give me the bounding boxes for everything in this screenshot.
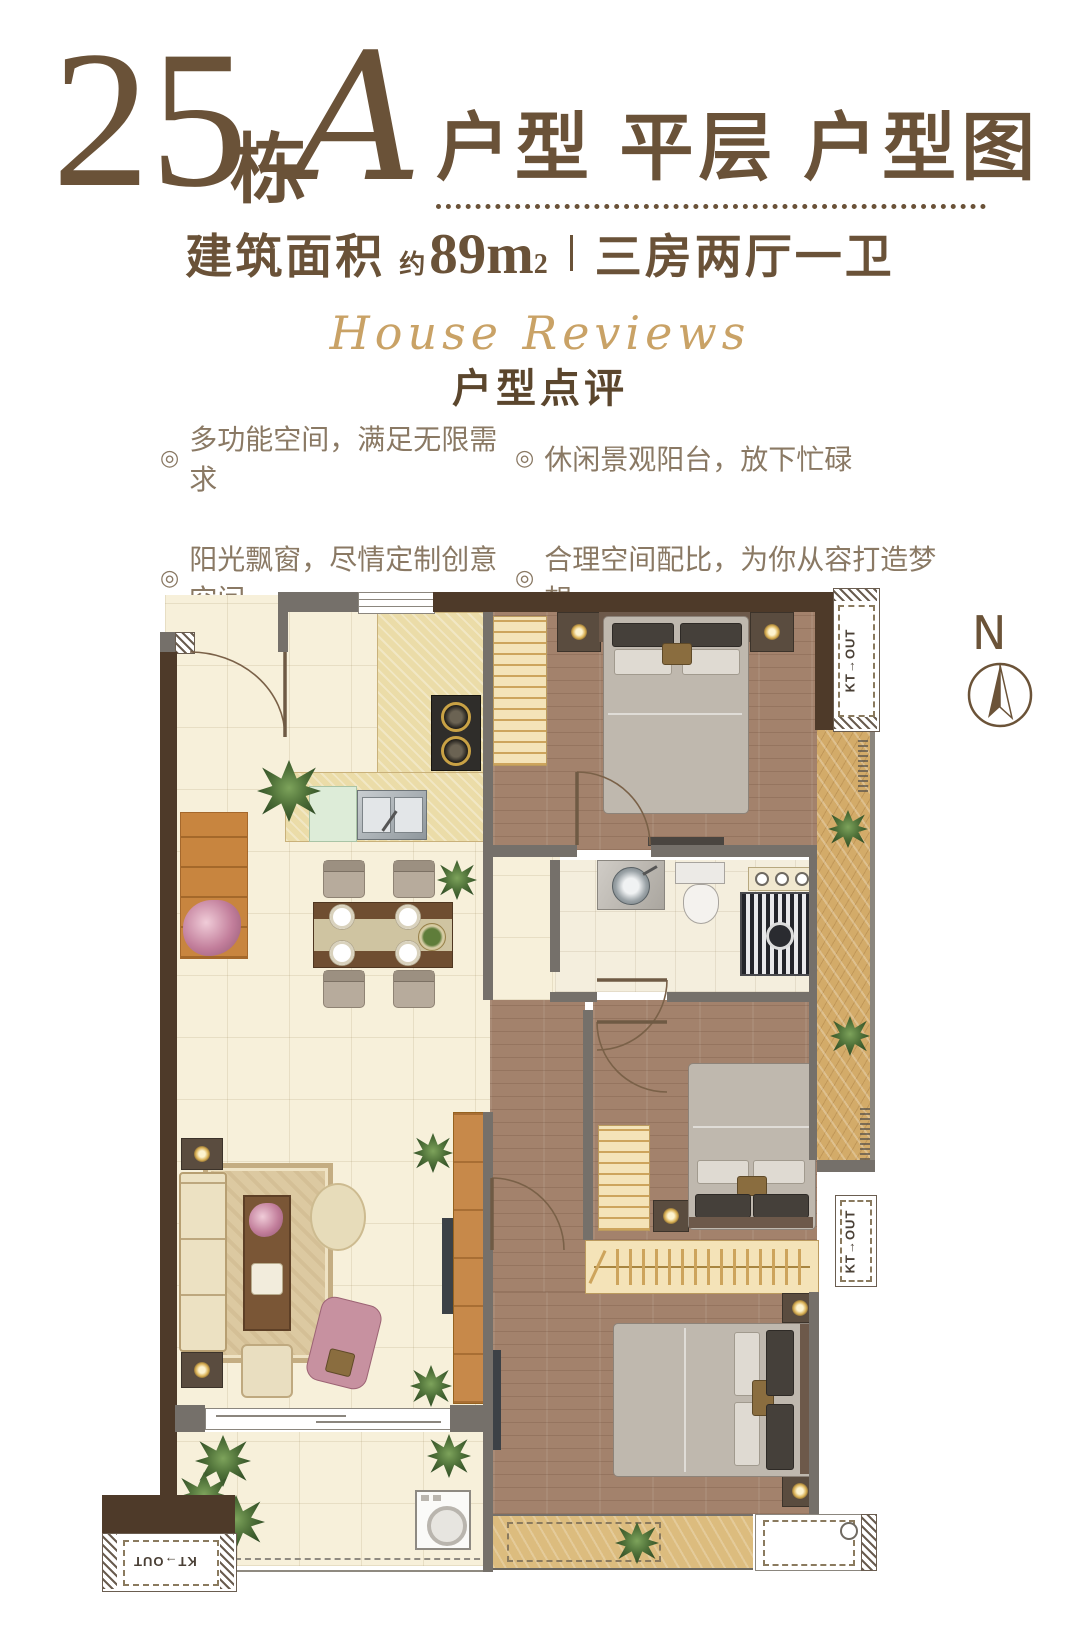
unit-letter: A: [294, 38, 423, 198]
divider-line: [570, 235, 573, 271]
page-title: 户型 平层 户型图: [436, 88, 1040, 195]
area-exponent: 2: [534, 249, 548, 281]
bullet-1-text: 多功能空间，满足无限需求: [189, 418, 515, 498]
area-label: 建筑面积: [185, 218, 385, 287]
area-value: 89m: [429, 222, 533, 287]
compass-icon: [965, 660, 1035, 730]
review-heading: 户型点评: [0, 356, 1080, 414]
area-approx: 约: [399, 244, 425, 281]
layout-text: 三房两厅一卫: [595, 218, 895, 287]
bullet-2-text: 休闲景观阳台，放下忙碌: [544, 438, 852, 478]
house-reviews-script: House Reviews: [0, 306, 1080, 360]
building-number: 25: [52, 40, 248, 201]
bullet-1: ◎多功能空间，满足无限需求: [160, 418, 515, 498]
door-arcs: [95, 560, 880, 1595]
bullet-2: ◎休闲景观阳台，放下忙碌: [515, 418, 950, 498]
bullet-icon: ◎: [515, 445, 534, 471]
floor-plan: KT→OUT KT→OUT KT→OUT: [95, 560, 880, 1595]
compass-north-label: N: [972, 606, 1006, 660]
area-subtitle: 建筑面积 约 89m 2 三房两厅一卫: [0, 218, 1080, 287]
dotted-divider: [436, 204, 986, 209]
bullet-icon: ◎: [160, 445, 179, 471]
